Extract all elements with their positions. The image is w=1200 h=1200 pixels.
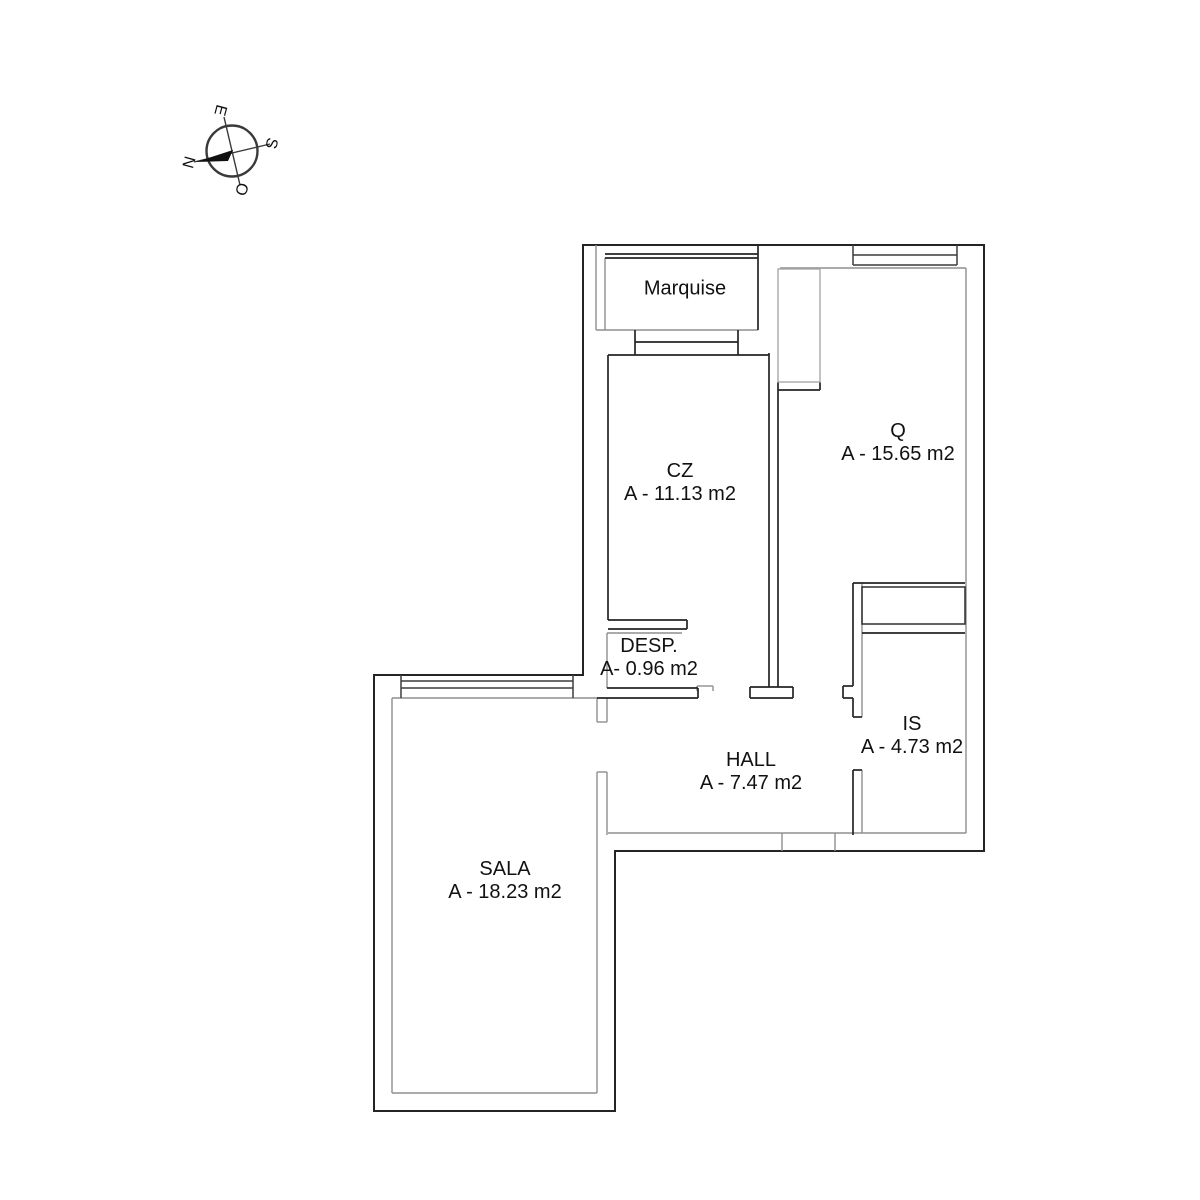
floor-plan-page: E S N O — [0, 0, 1200, 1200]
compass-label-south: S — [261, 136, 280, 151]
q-is-shelf — [862, 587, 965, 624]
q-wardrobe — [778, 269, 820, 382]
room-label-cz: CZ A - 11.13 m2 — [624, 460, 736, 506]
room-name: HALL — [700, 749, 802, 772]
room-label-marquise: Marquise — [644, 278, 726, 301]
room-name: SALA — [448, 858, 561, 881]
compass-label-west: O — [231, 181, 251, 197]
room-area: A - 4.73 m2 — [861, 736, 963, 759]
compass-label-east: E — [210, 103, 229, 118]
room-area: A- 0.96 m2 — [600, 658, 698, 681]
room-label-hall: HALL A - 7.47 m2 — [700, 749, 802, 795]
room-area: A - 15.65 m2 — [841, 443, 954, 466]
room-name: CZ — [624, 460, 736, 483]
room-area: A - 18.23 m2 — [448, 881, 561, 904]
room-label-q: Q A - 15.65 m2 — [841, 420, 954, 466]
room-name: IS — [861, 713, 963, 736]
room-area: A - 7.47 m2 — [700, 772, 802, 795]
room-label-sala: SALA A - 18.23 m2 — [448, 858, 561, 904]
room-name: Marquise — [644, 278, 726, 301]
compass-rose: E S N O — [178, 103, 280, 198]
room-name: DESP. — [600, 635, 698, 658]
compass-label-north: N — [178, 154, 197, 170]
room-label-desp: DESP. A- 0.96 m2 — [600, 635, 698, 681]
room-area: A - 11.13 m2 — [624, 483, 736, 506]
floor-plan-drawing: E S N O — [0, 0, 1200, 1200]
room-label-is: IS A - 4.73 m2 — [861, 713, 963, 759]
room-name: Q — [841, 420, 954, 443]
